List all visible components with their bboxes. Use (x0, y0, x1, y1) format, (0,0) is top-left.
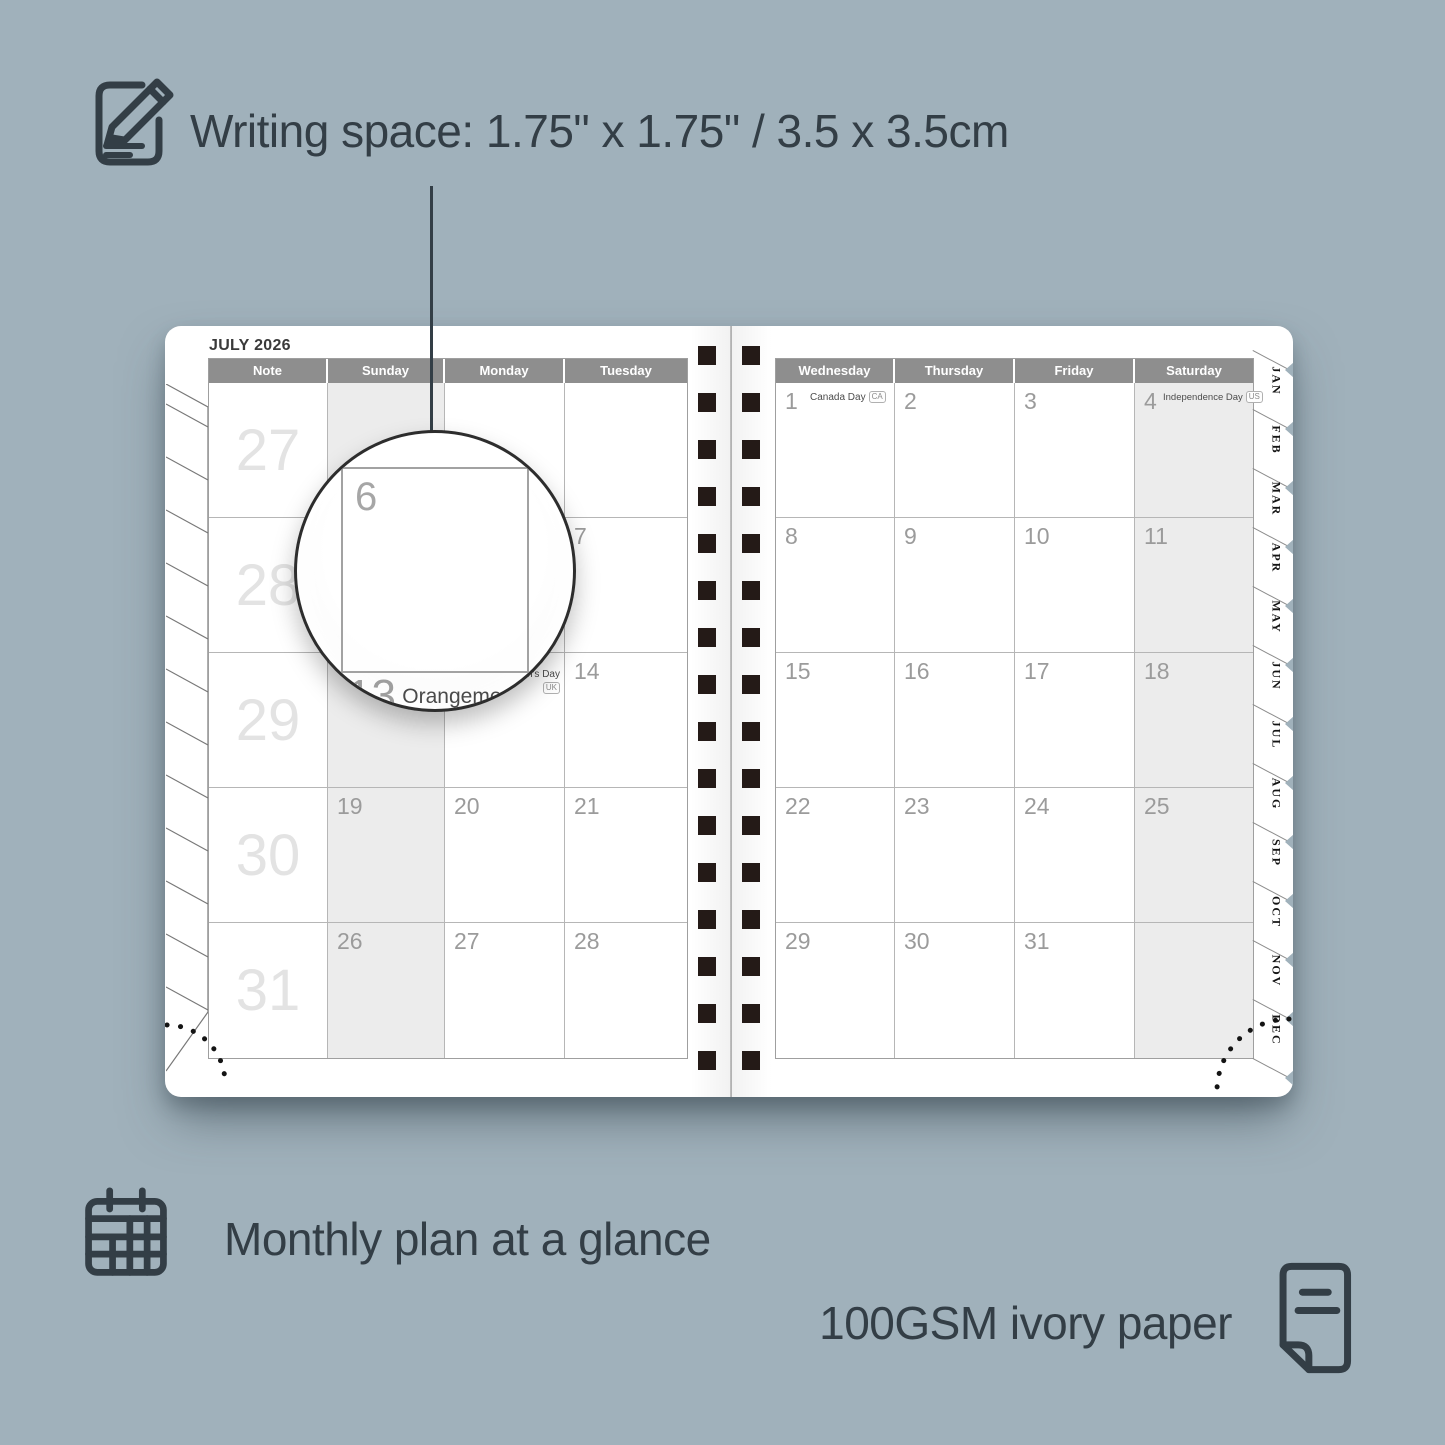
calendar-cell: 19 (328, 788, 445, 923)
month-tab-sep: SEP (1255, 822, 1293, 881)
calendar-cell (565, 383, 687, 518)
calendar-cell: 15 (776, 653, 895, 788)
week-number-cell: 29 (209, 653, 328, 788)
magnified-holiday-label: Orangemen's Day (n.i.) UK (385, 683, 545, 712)
calendar-cell: 28 (565, 923, 687, 1058)
note-pencil-icon (84, 74, 184, 179)
calendar-cell: 18 (1135, 653, 1253, 788)
month-tab-strip: JANFEBMARAPRMAYJUNJULAUGSEPOCTNOVDEC (1255, 350, 1293, 1090)
date-number: 1 (785, 388, 798, 415)
day-header: Saturday (1135, 359, 1253, 383)
calendar-cell: 10 (1015, 518, 1135, 653)
calendar-cell: 2 (895, 383, 1015, 518)
day-header: Wednesday (776, 359, 895, 383)
spiral-binding-right (742, 346, 760, 1096)
month-tab-label: JUL (1268, 720, 1283, 749)
day-header: Friday (1015, 359, 1135, 383)
date-number: 14 (574, 658, 600, 685)
calendar-cell: 9 (895, 518, 1015, 653)
calendar-cell: 31 (1015, 923, 1135, 1058)
date-number: 15 (785, 658, 811, 685)
day-header: Monday (445, 359, 565, 383)
date-number: 2 (904, 388, 917, 415)
page-edge-hatching (166, 384, 210, 1076)
monthly-plan-caption: Monthly plan at a glance (224, 1212, 711, 1266)
paper-caption: 100GSM ivory paper (819, 1296, 1232, 1350)
date-number: 7 (574, 523, 587, 550)
magnifier-pointer-line (430, 186, 433, 433)
date-number: 4 (1144, 388, 1157, 415)
writing-space-caption: Writing space: 1.75" x 1.75" / 3.5 x 3.5… (190, 104, 1009, 158)
month-tab-may: MAY (1255, 586, 1293, 645)
month-tab-jul: JUL (1255, 704, 1293, 763)
magnified-day-number: 6 (355, 475, 377, 520)
month-tab-label: JAN (1268, 366, 1283, 395)
month-tab-apr: APR (1255, 527, 1293, 586)
country-badge: CA (869, 391, 886, 403)
week-number-cell: 27 (209, 383, 328, 518)
calendar-cell: 29 (776, 923, 895, 1058)
spiral-binding-left (698, 346, 716, 1096)
date-number: 29 (785, 928, 811, 955)
calendar-cell: 25 (1135, 788, 1253, 923)
date-number: 25 (1144, 793, 1170, 820)
date-number: 21 (574, 793, 600, 820)
date-number: 17 (1024, 658, 1050, 685)
calendar-cell: 30 (895, 923, 1015, 1058)
calendar-right-page: WednesdayThursdayFridaySaturday1Canada D… (775, 358, 1254, 1059)
date-number: 10 (1024, 523, 1050, 550)
date-number: 23 (904, 793, 930, 820)
calendar-cell: 26 (328, 923, 445, 1058)
date-number: 27 (454, 928, 480, 955)
corner-arc-left (165, 1021, 245, 1097)
date-number: 30 (904, 928, 930, 955)
month-tab-label: MAY (1268, 600, 1283, 634)
page-title: JULY 2026 (209, 337, 291, 355)
month-tab-label: APR (1268, 542, 1283, 573)
week-number-cell: 30 (209, 788, 328, 923)
date-number: 16 (904, 658, 930, 685)
month-tab-jun: JUN (1255, 645, 1293, 704)
month-tab-feb: FEB (1255, 409, 1293, 468)
corner-arc-right (1203, 1011, 1293, 1097)
month-tab-label: SEP (1268, 839, 1283, 867)
day-header: Thursday (895, 359, 1015, 383)
month-tab-jan: JAN (1255, 350, 1293, 409)
product-image: Writing space: 1.75" x 1.75" / 3.5 x 3.5… (0, 0, 1445, 1445)
calendar-cell: 20 (445, 788, 565, 923)
day-header: Note (209, 359, 328, 383)
calendar-cell: 7 (565, 518, 687, 653)
date-number: 3 (1024, 388, 1037, 415)
calendar-cell: 1Canada DayCA (776, 383, 895, 518)
date-number: 28 (574, 928, 600, 955)
month-tab-label: AUG (1268, 777, 1283, 810)
month-tab-oct: OCT (1255, 881, 1293, 940)
date-number: 18 (1144, 658, 1170, 685)
calendar-cell: 16 (895, 653, 1015, 788)
planner-spread: JULY 2026 NoteSundayMondayTuesday2728672… (165, 326, 1293, 1097)
calendar-grid-icon (78, 1186, 174, 1287)
calendar-cell: 14 (565, 653, 687, 788)
date-number: 9 (904, 523, 917, 550)
magnifier-lens: 6 13 Orangemen's Day (n.i.) UK (294, 430, 576, 712)
calendar-cell: 24 (1015, 788, 1135, 923)
day-header: Tuesday (565, 359, 687, 383)
month-tab-nov: NOV (1255, 940, 1293, 999)
calendar-cell: 21 (565, 788, 687, 923)
date-number: 24 (1024, 793, 1050, 820)
calendar-cell: 3 (1015, 383, 1135, 518)
calendar-cell: 11 (1135, 518, 1253, 653)
page-seam (730, 326, 732, 1097)
month-tab-label: NOV (1268, 954, 1283, 987)
calendar-cell: 17 (1015, 653, 1135, 788)
month-tab-label: JUN (1268, 661, 1283, 690)
month-tab-aug: AUG (1255, 763, 1293, 822)
calendar-cell: 4Independence DayUS (1135, 383, 1253, 518)
country-badge: UK (543, 682, 560, 694)
calendar-cell: 22 (776, 788, 895, 923)
date-number: 8 (785, 523, 798, 550)
month-tab-label: OCT (1268, 896, 1283, 928)
day-header: Sunday (328, 359, 445, 383)
date-number: 11 (1144, 523, 1168, 550)
calendar-cell: 8 (776, 518, 895, 653)
date-number: 31 (1024, 928, 1050, 955)
paper-sheet-icon (1268, 1262, 1354, 1379)
calendar-cell: 27 (445, 923, 565, 1058)
holiday-label: Canada DayCA (810, 391, 886, 403)
holiday-label: Independence DayUS (1163, 391, 1263, 403)
date-number: 26 (337, 928, 363, 955)
month-tab-label: FEB (1268, 425, 1283, 454)
month-tab-label: MAR (1268, 481, 1283, 516)
calendar-cell: 23 (895, 788, 1015, 923)
date-number: 22 (785, 793, 811, 820)
date-number: 20 (454, 793, 480, 820)
month-tab-mar: MAR (1255, 468, 1293, 527)
date-number: 19 (337, 793, 363, 820)
